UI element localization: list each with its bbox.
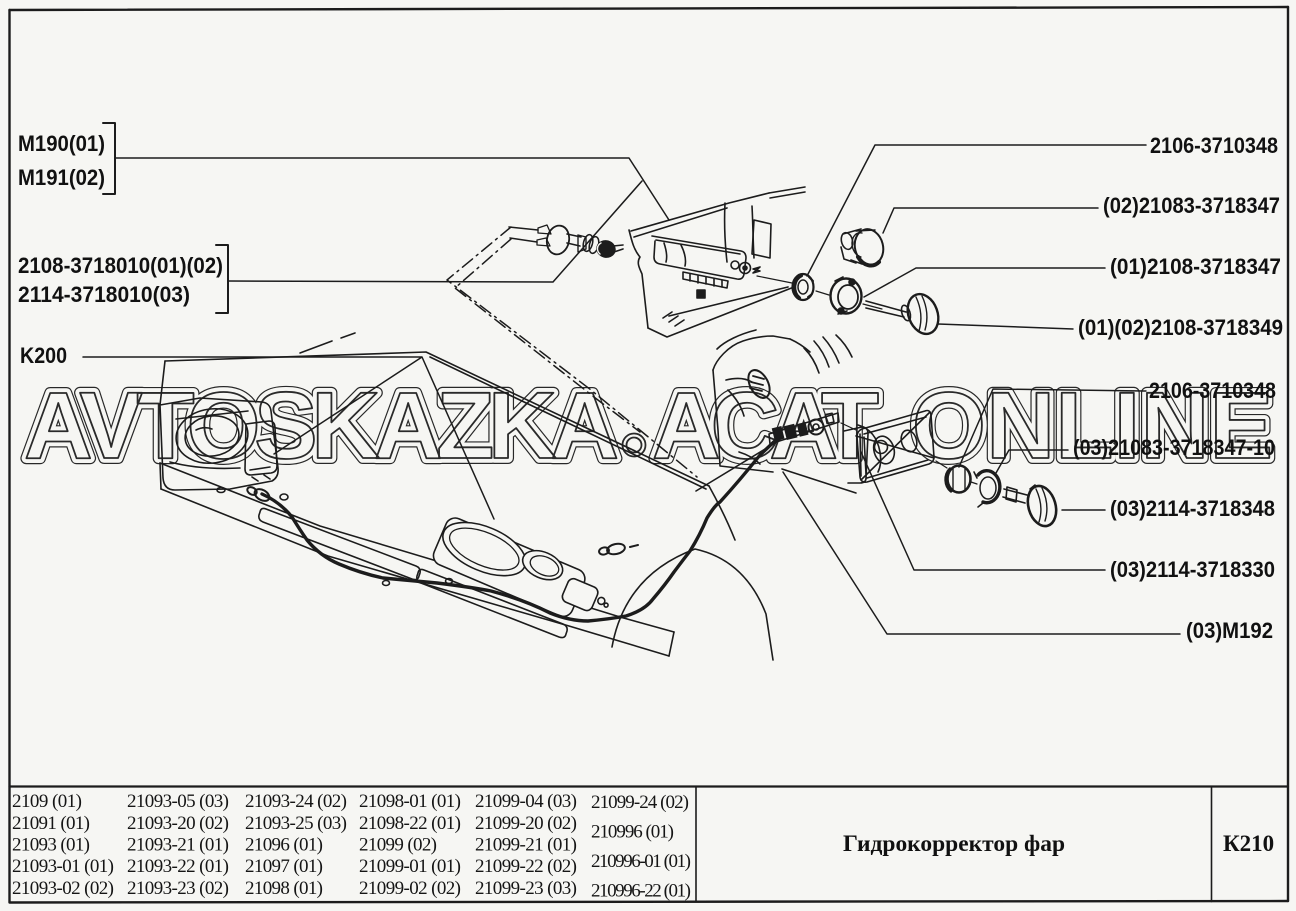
- svg-text:21099-02 (02): 21099-02 (02): [359, 878, 461, 899]
- svg-text:21098-22 (01): 21098-22 (01): [359, 813, 461, 834]
- svg-text:210996-22 (01): 210996-22 (01): [591, 881, 691, 902]
- svg-text:21099-23 (03): 21099-23 (03): [475, 878, 577, 899]
- svg-text:(03)M192: (03)M192: [1186, 618, 1273, 643]
- svg-text:21099-24 (02): 21099-24 (02): [591, 792, 689, 813]
- svg-text:21097 (01): 21097 (01): [245, 856, 323, 877]
- svg-text:210996 (01): 210996 (01): [591, 822, 674, 843]
- svg-text:(02)21083-3718347: (02)21083-3718347: [1103, 193, 1280, 218]
- svg-text:21093-05 (03): 21093-05 (03): [127, 791, 229, 812]
- svg-text:21093-22 (01): 21093-22 (01): [127, 856, 229, 877]
- svg-text:21099-01 (01): 21099-01 (01): [359, 856, 461, 877]
- svg-text:21091 (01): 21091 (01): [12, 813, 90, 834]
- svg-text:21099-20 (02): 21099-20 (02): [475, 813, 577, 834]
- svg-text:(03)21083-3718347-10: (03)21083-3718347-10: [1073, 435, 1275, 460]
- svg-text:21096 (01): 21096 (01): [245, 835, 323, 856]
- svg-text:K200: K200: [20, 343, 67, 368]
- svg-text:210996-01 (01): 210996-01 (01): [591, 851, 691, 872]
- svg-text:2114-3718010(03): 2114-3718010(03): [18, 282, 190, 307]
- svg-text:21098 (01): 21098 (01): [245, 878, 323, 899]
- svg-text:2106-3710348: 2106-3710348: [1150, 133, 1278, 158]
- svg-text:21093-21 (01): 21093-21 (01): [127, 835, 229, 856]
- svg-text:21099 (02): 21099 (02): [359, 835, 437, 856]
- svg-text:21098-01 (01): 21098-01 (01): [359, 791, 461, 812]
- svg-text:M191(02): M191(02): [18, 165, 105, 190]
- svg-text:21099-04 (03): 21099-04 (03): [475, 791, 577, 812]
- svg-text:21093-24 (02): 21093-24 (02): [245, 791, 347, 812]
- svg-text:21093-23 (02): 21093-23 (02): [127, 878, 229, 899]
- svg-text:AVTOSKAZKA: AVTOSKAZKA: [24, 373, 619, 479]
- svg-text:21093-01 (01): 21093-01 (01): [12, 856, 114, 877]
- svg-text:21099-22 (02): 21099-22 (02): [475, 856, 577, 877]
- svg-text:(03)2114-3718330: (03)2114-3718330: [1110, 557, 1275, 582]
- svg-text:M190(01): M190(01): [18, 131, 105, 156]
- svg-text:21093-20 (02): 21093-20 (02): [127, 813, 229, 834]
- svg-text:(01)(02)2108-3718349: (01)(02)2108-3718349: [1078, 315, 1283, 340]
- svg-text:21093 (01): 21093 (01): [12, 835, 90, 856]
- svg-text:2108-3718010(01)(02): 2108-3718010(01)(02): [18, 253, 223, 278]
- svg-text:2109 (01): 2109 (01): [12, 791, 82, 812]
- svg-text:21093-25 (03): 21093-25 (03): [245, 813, 347, 834]
- svg-text:К210: К210: [1223, 831, 1274, 856]
- svg-text:2106-3710348: 2106-3710348: [1149, 378, 1276, 403]
- svg-text:21093-02 (02): 21093-02 (02): [12, 878, 114, 899]
- svg-text:Гидрокорректор фар: Гидрокорректор фар: [843, 831, 1065, 856]
- svg-text:(03)2114-3718348: (03)2114-3718348: [1110, 496, 1275, 521]
- svg-text:ACAT: ACAT: [652, 373, 879, 479]
- svg-text:(01)2108-3718347: (01)2108-3718347: [1110, 254, 1281, 279]
- svg-text:21099-21 (01): 21099-21 (01): [475, 835, 577, 856]
